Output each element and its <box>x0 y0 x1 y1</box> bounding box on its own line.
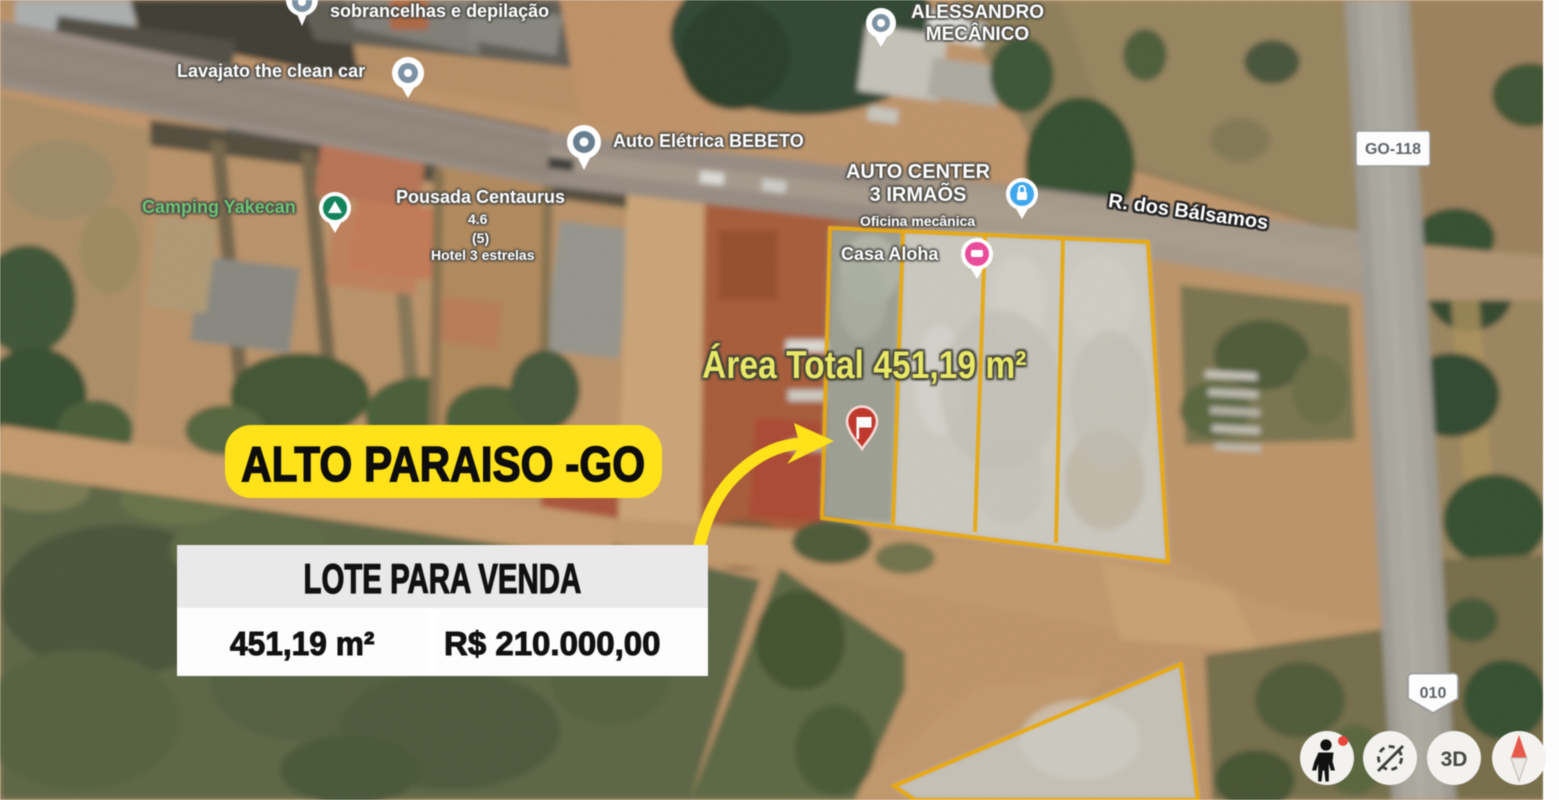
svg-text:GO-118: GO-118 <box>1365 141 1421 158</box>
svg-text:010: 010 <box>1420 685 1447 702</box>
svg-text:3D: 3D <box>1441 748 1468 771</box>
